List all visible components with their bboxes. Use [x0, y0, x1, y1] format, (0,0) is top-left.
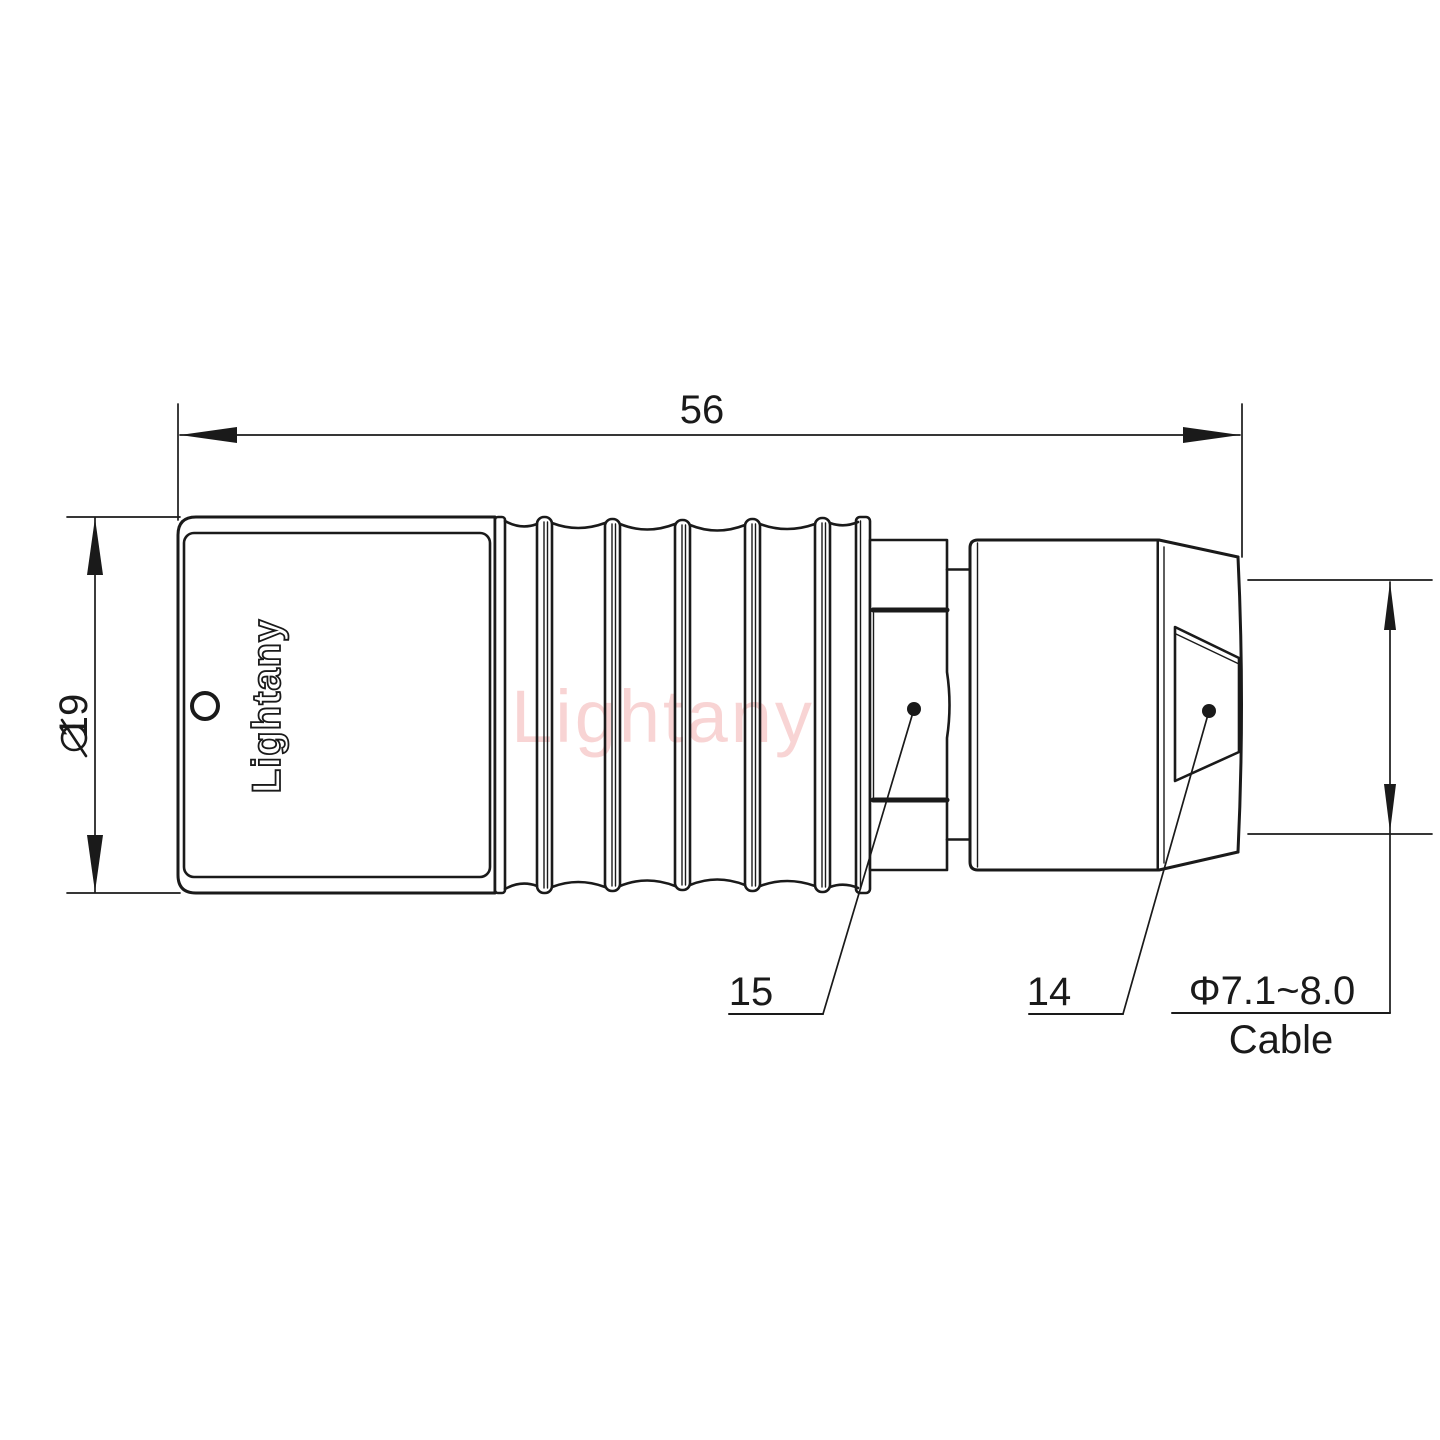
dimension-diameter-19: 19	[52, 517, 180, 893]
shell-face	[184, 533, 490, 877]
diameter-dimension-text: 19	[52, 694, 96, 739]
part-label-15: 15	[729, 970, 774, 1014]
rear-block-outline	[970, 540, 1158, 870]
length-dimension-text: 56	[680, 388, 725, 432]
technical-drawing-canvas: Lightany Lightany	[0, 0, 1440, 1440]
shell-engraving: Lightany	[245, 619, 289, 794]
coupling-nut	[870, 540, 950, 870]
front-shell: Lightany	[178, 517, 495, 893]
boot-end-ring	[856, 517, 870, 893]
boot-rib	[815, 518, 830, 892]
rear-body	[970, 540, 1242, 870]
strain-relief-boot	[495, 517, 870, 893]
boot-junction-ring	[495, 517, 505, 893]
connector-drawing: Lightany Lightany	[0, 0, 1440, 1440]
watermark-text: Lightany	[511, 675, 815, 758]
part-label-14: 14	[1027, 970, 1072, 1014]
cable-diameter-text: Φ7.1~8.0	[1189, 969, 1355, 1013]
cable-label-text: Cable	[1229, 1018, 1334, 1062]
